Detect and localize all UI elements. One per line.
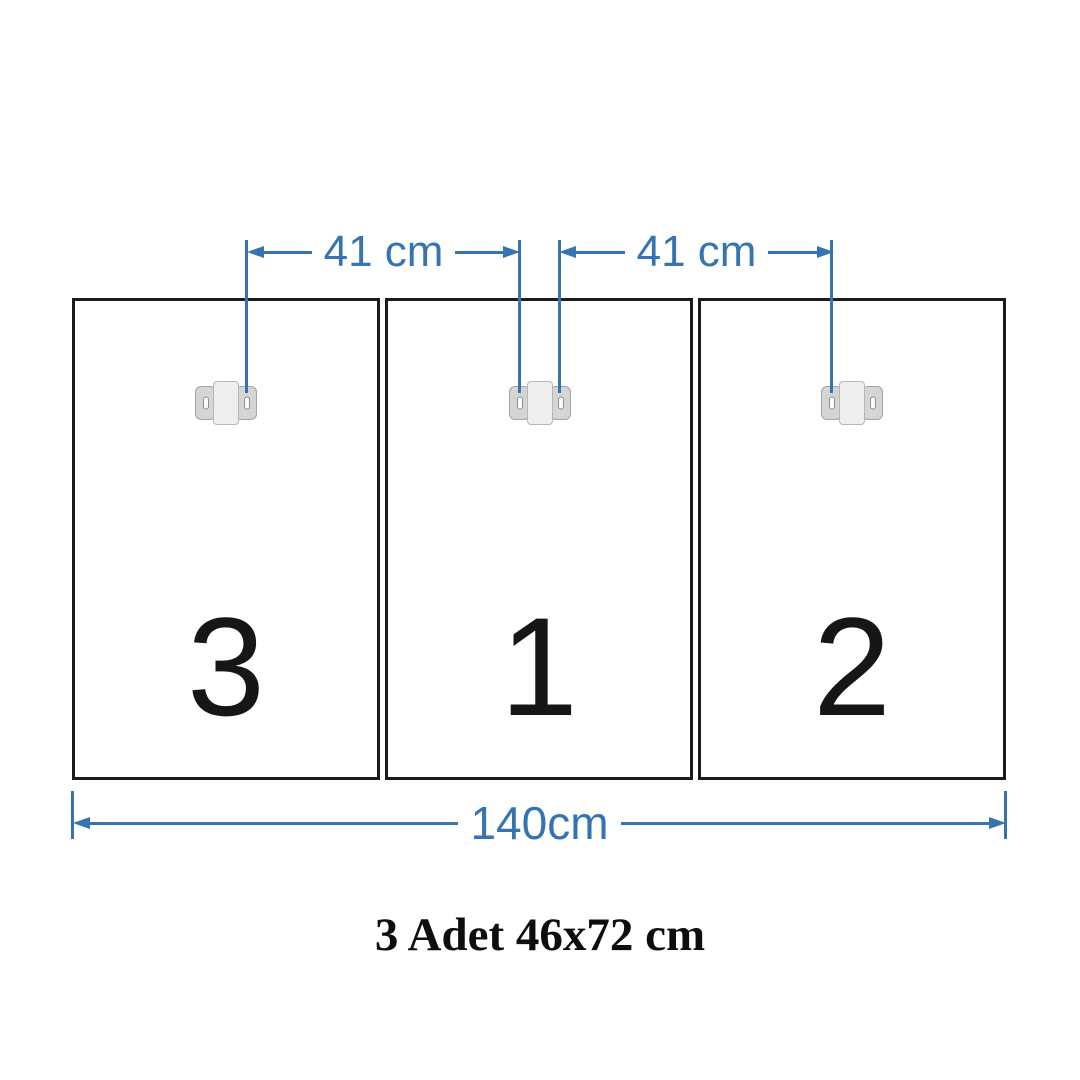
dimension-line (576, 251, 625, 254)
arrow-right-icon (817, 246, 834, 258)
bracket-slot-icon (870, 397, 876, 410)
arrow-left-icon (73, 817, 90, 829)
dimension-line (264, 251, 312, 254)
arrow-left-icon (559, 246, 576, 258)
panel-3: 3 (72, 298, 380, 780)
dimension-gap-right: 41 cm (559, 224, 834, 280)
dimension-line (455, 251, 503, 254)
bracket-slot-icon (244, 397, 250, 410)
dimension-line (621, 822, 989, 825)
bracket-plate-icon (527, 381, 553, 425)
panel-3-label: 3 (75, 597, 377, 737)
bracket-slot-icon (517, 397, 523, 410)
bracket-plate-icon (839, 381, 865, 425)
dimension-total-width: 140cm (73, 795, 1006, 851)
arrow-right-icon (503, 246, 520, 258)
dimension-line (90, 822, 458, 825)
caption: 3 Adet 46x72 cm (0, 908, 1080, 962)
panel-2: 2 (698, 298, 1006, 780)
bracket-plate-icon (213, 381, 239, 425)
arrow-right-icon (989, 817, 1006, 829)
bracket-slot-icon (203, 397, 209, 410)
bracket-slot-icon (829, 397, 835, 410)
dimension-gap-right-value: 41 cm (625, 230, 769, 274)
mounting-diagram: 3 1 2 41 cm 41 cm (0, 0, 1080, 1080)
dimension-gap-left-value: 41 cm (312, 230, 456, 274)
dimension-line (768, 251, 817, 254)
bracket-tab-icon (862, 386, 883, 420)
bracket-slot-icon (558, 397, 564, 410)
arrow-left-icon (247, 246, 264, 258)
panel-2-label: 2 (701, 597, 1003, 737)
dimension-gap-left: 41 cm (247, 224, 520, 280)
panel-1-label: 1 (388, 597, 690, 737)
dimension-total-width-value: 140cm (458, 800, 620, 846)
panel-1: 1 (385, 298, 693, 780)
